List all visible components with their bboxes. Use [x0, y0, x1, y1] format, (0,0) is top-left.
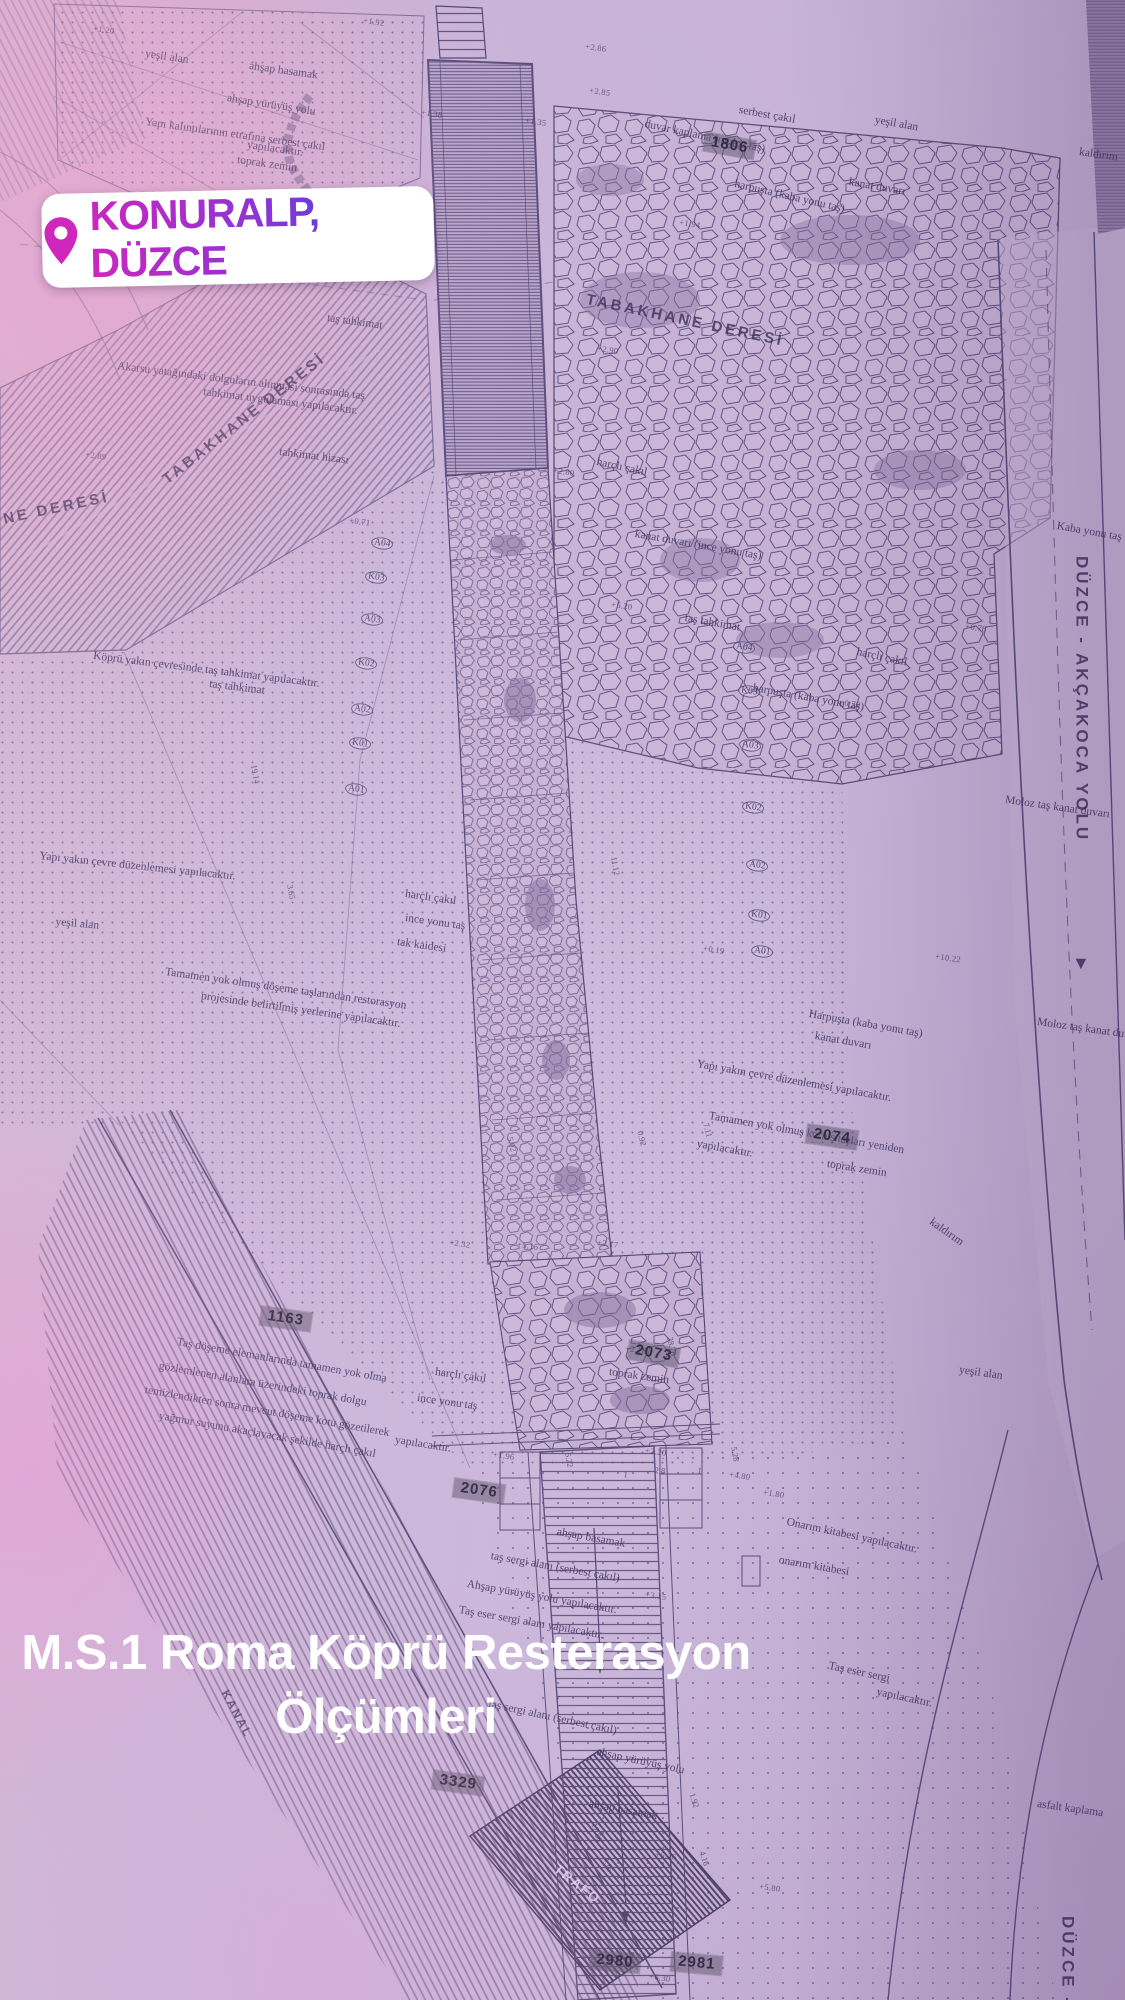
story-title-line1: M.S.1 Roma Köprü Resterasyon [0, 1622, 772, 1686]
story-title: M.S.1 Roma Köprü Resterasyon Ölçümleri [0, 1622, 772, 1749]
story-screenshot: yeşil alan ahşap basamak ahşap yürüyüş y… [0, 0, 1125, 2000]
location-pin-icon [42, 215, 81, 266]
story-title-line2: Ölçümleri [0, 1686, 772, 1750]
location-sticker[interactable]: KONURALP, DÜZCE [41, 186, 435, 288]
location-sticker-label: KONURALP, DÜZCE [89, 186, 435, 287]
